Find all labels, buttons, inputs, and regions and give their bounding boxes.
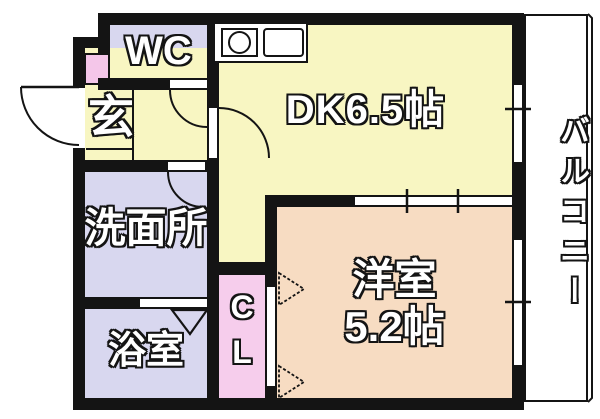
wall-closet-door-cap-bottom bbox=[265, 386, 277, 398]
floor-plan: WC DK6.5帖 玄 洗面所 浴室 C L 洋室 5.2帖 バルコニー bbox=[0, 0, 600, 419]
wall-western-top bbox=[265, 195, 355, 207]
label-western-line1: 洋室 bbox=[277, 256, 512, 303]
window-western bbox=[512, 240, 524, 365]
wall-wc-left bbox=[98, 13, 110, 55]
door-opening-wc bbox=[170, 78, 207, 90]
room-dk-lobe-floor bbox=[219, 195, 265, 262]
label-closet-line1: C bbox=[219, 285, 265, 330]
sliding-door-dk-western bbox=[355, 195, 512, 207]
kitchen-stove-icon bbox=[263, 28, 304, 57]
sink-circle-icon bbox=[228, 31, 251, 54]
label-western-line2: 5.2帖 bbox=[277, 303, 512, 350]
door-opening-dk bbox=[207, 108, 219, 158]
door-opening-closet bbox=[265, 287, 277, 386]
balcony-outer-edge bbox=[588, 14, 592, 402]
door-opening-washroom bbox=[168, 160, 205, 172]
label-balcony: バルコニー bbox=[524, 85, 588, 345]
wall-closet-top bbox=[219, 262, 277, 275]
wall-right-lower bbox=[512, 365, 524, 410]
wall-bottom bbox=[73, 398, 524, 410]
window-dk bbox=[512, 85, 524, 162]
wall-closet-door-cap-top bbox=[265, 275, 277, 287]
wall-center-lower bbox=[207, 158, 219, 398]
wall-right-upper bbox=[512, 13, 524, 85]
label-bathroom: 浴室 bbox=[85, 331, 207, 373]
wall-right-middle bbox=[512, 162, 524, 240]
wall-top bbox=[98, 13, 524, 25]
label-closet: C L bbox=[219, 285, 265, 375]
label-wc: WC bbox=[110, 29, 207, 73]
door-opening-bathroom bbox=[140, 297, 207, 309]
wall-left-lower bbox=[73, 148, 85, 410]
label-closet-line2: L bbox=[219, 330, 265, 375]
entrance-door-arc bbox=[21, 87, 79, 145]
label-dk: DK6.5帖 bbox=[219, 88, 512, 132]
label-genkan: 玄 bbox=[85, 92, 137, 143]
label-western: 洋室 5.2帖 bbox=[277, 256, 512, 350]
label-washroom: 洗面所 bbox=[78, 206, 214, 251]
